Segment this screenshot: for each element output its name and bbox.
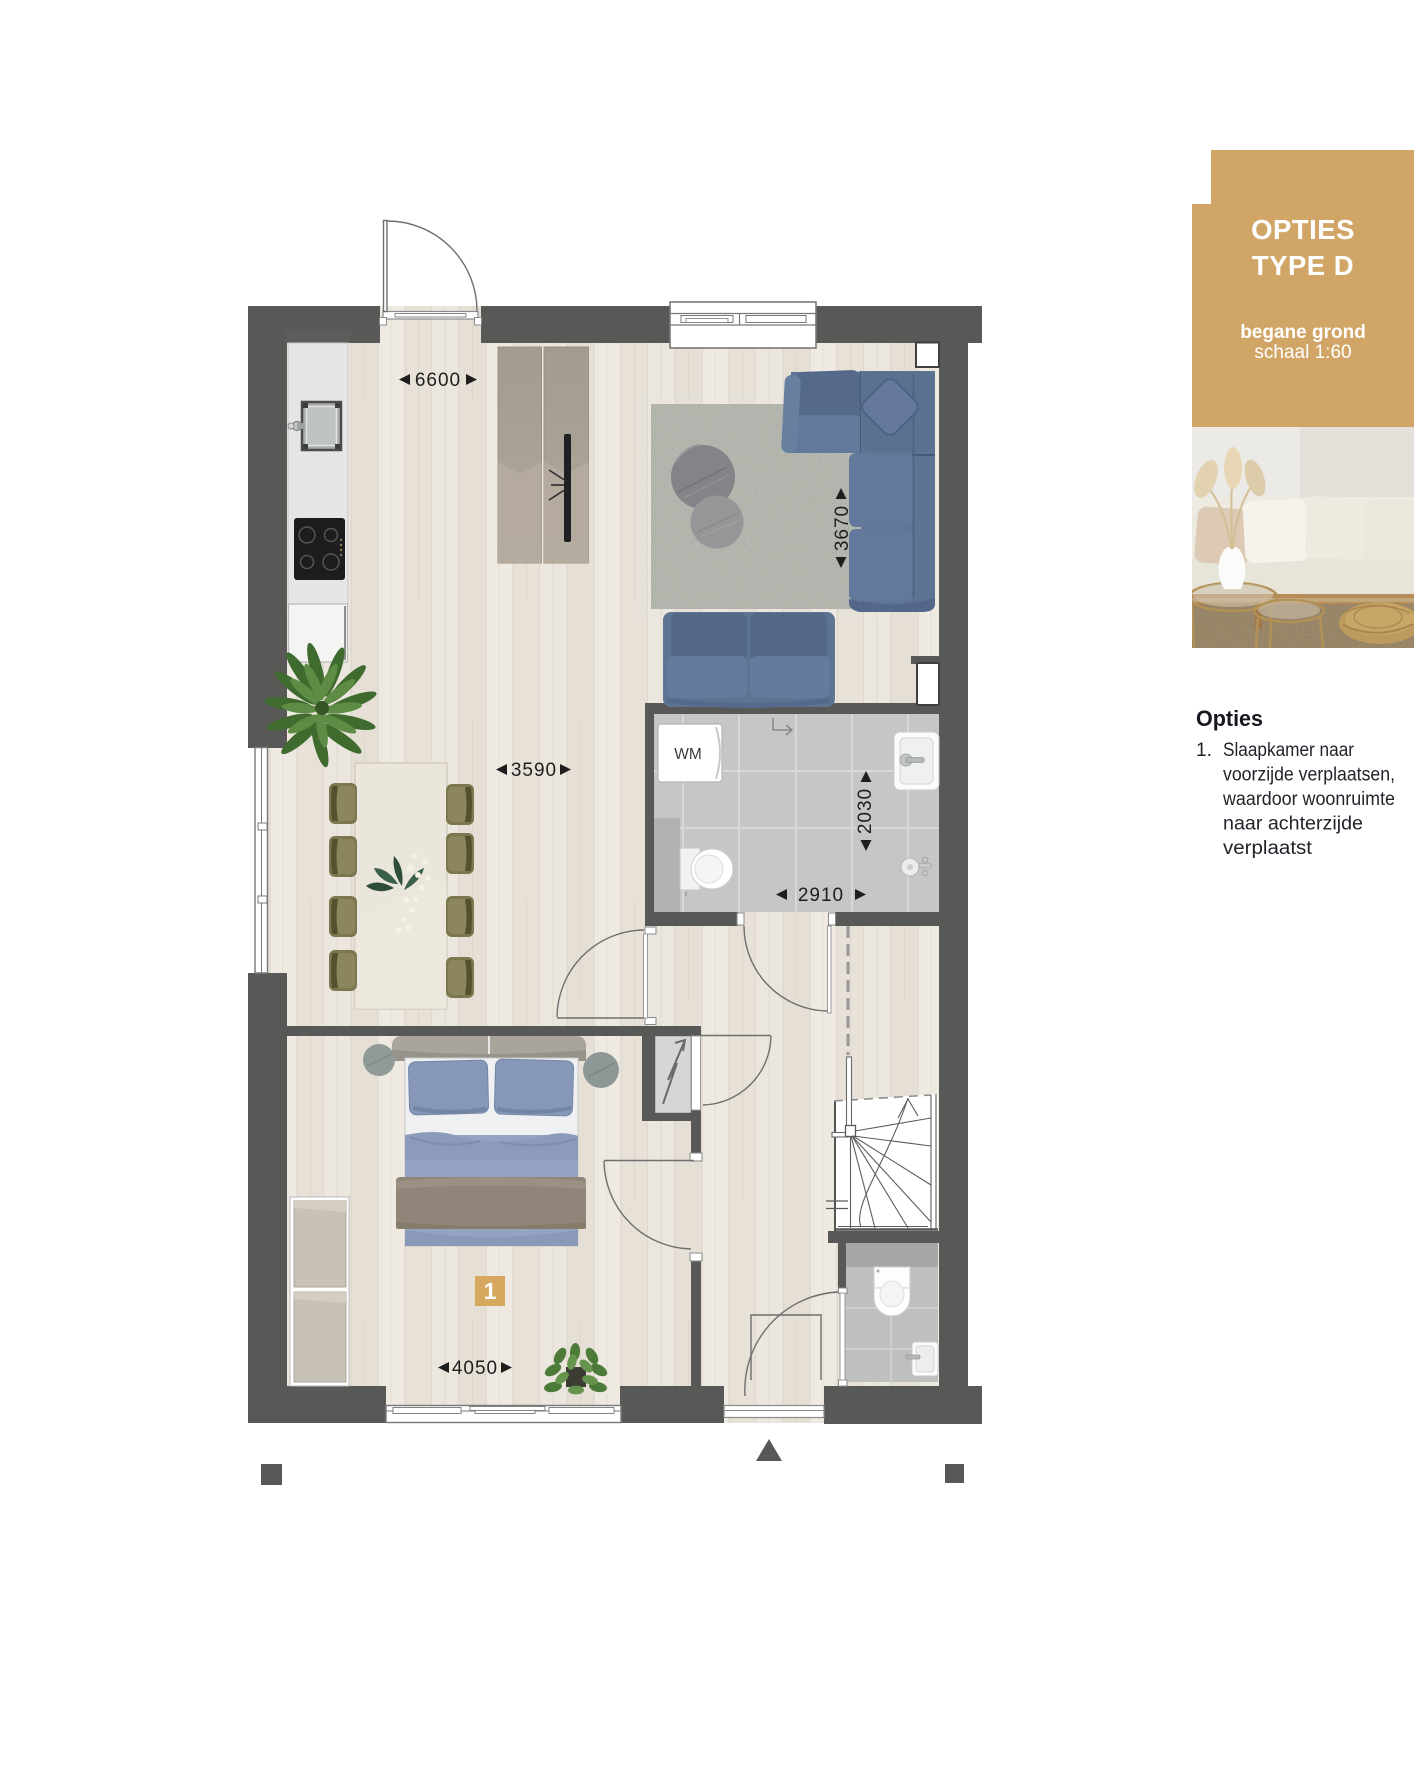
svg-text:2030: 2030 bbox=[855, 788, 876, 834]
svg-text:OPTIES: OPTIES bbox=[1251, 214, 1355, 245]
svg-text:verplaatst: verplaatst bbox=[1223, 838, 1313, 859]
svg-text:WM: WM bbox=[674, 746, 702, 763]
svg-text:1.: 1. bbox=[1196, 740, 1212, 761]
svg-text:naar achterzijde: naar achterzijde bbox=[1223, 814, 1363, 835]
svg-text:Opties: Opties bbox=[1196, 706, 1263, 731]
svg-text:waardoor woonruimte: waardoor woonruimte bbox=[1222, 789, 1395, 810]
svg-text:1: 1 bbox=[484, 1278, 497, 1304]
svg-text:Slaapkamer naar: Slaapkamer naar bbox=[1223, 740, 1355, 761]
svg-text:6600: 6600 bbox=[415, 370, 461, 391]
svg-text:TYPE D: TYPE D bbox=[1252, 250, 1354, 281]
svg-text:4050: 4050 bbox=[452, 1358, 498, 1379]
svg-text:begane grond: begane grond bbox=[1240, 322, 1366, 343]
svg-text:voorzijde verplaatsen,: voorzijde verplaatsen, bbox=[1223, 765, 1395, 786]
svg-text:schaal 1:60: schaal 1:60 bbox=[1254, 342, 1351, 363]
svg-text:2910: 2910 bbox=[798, 885, 844, 906]
svg-text:3590: 3590 bbox=[511, 760, 557, 781]
svg-text:3670: 3670 bbox=[832, 505, 853, 551]
